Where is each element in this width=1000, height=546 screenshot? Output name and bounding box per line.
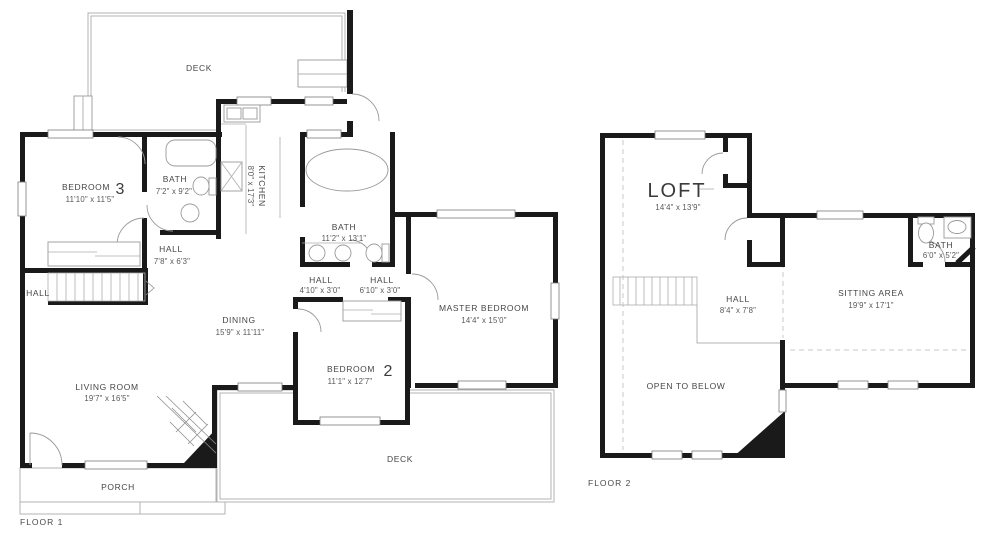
room-dims-hall1: 7'8" x 6'3": [154, 257, 190, 266]
sink-icon: [181, 204, 199, 222]
room-label-bedroom3: BEDROOM: [62, 182, 110, 192]
sink-icon: [335, 245, 351, 261]
floor1-plan: DECK BEDROOM 3 11'10" x 11'5" BATH 7'2" …: [18, 10, 559, 527]
floor1-title: FLOOR 1: [20, 517, 63, 527]
room-label-deck-top: DECK: [186, 63, 212, 73]
room-label-hall1: HALL: [159, 244, 183, 254]
living-corner-wall: [184, 428, 217, 463]
bath2-fixtures: [302, 149, 389, 262]
room-label-sitting: SITTING AREA: [838, 288, 904, 298]
room-label-bath2: BATH: [332, 222, 356, 232]
bathtub-icon: [166, 140, 216, 166]
room-label-kitchen: KITCHEN: [257, 165, 267, 207]
room-label-open-below: OPEN TO BELOW: [647, 381, 726, 391]
room-dims-bath2: 11'2" x 13'1": [322, 234, 367, 243]
room-dims-bath-f2: 6'0" x 5'2": [923, 251, 959, 260]
room-label-bath1: BATH: [163, 174, 187, 184]
bedroom3-closet: [48, 242, 140, 266]
master-bedroom-floor: [406, 212, 558, 388]
room-label-bedroom2: BEDROOM: [327, 364, 375, 374]
room-dims-bedroom2: 11'1" x 12'7": [328, 377, 373, 386]
room-dims-loft: 14'4" x 13'9": [655, 203, 700, 212]
floor1-stairs: [48, 273, 154, 301]
porch-step-strip: [20, 502, 225, 514]
room-dims-hall-f2: 8'4" x 7'8": [720, 306, 756, 315]
room-label-deck-bottom: DECK: [387, 454, 413, 464]
floor2-plan: LOFT 14'4" x 13'9" BATH 6'0" x 5'2" HALL…: [588, 131, 975, 488]
toilet-icon: [366, 244, 382, 262]
room-label-porch: PORCH: [101, 482, 135, 492]
room-label-dining: DINING: [222, 315, 255, 325]
bathtub-icon: [306, 149, 388, 191]
room-number-bedroom3: 3: [116, 181, 125, 198]
floorplan-page: DECK BEDROOM 3 11'10" x 11'5" BATH 7'2" …: [0, 0, 1000, 546]
room-dims-bath1: 7'2" x 9'2": [156, 187, 192, 196]
toilet-tank-icon: [382, 244, 389, 262]
room-dims-sitting: 19'9" x 17'1": [848, 301, 893, 310]
floorplan-canvas: DECK BEDROOM 3 11'10" x 11'5" BATH 7'2" …: [0, 0, 1000, 546]
room-dims-kitchen: 8'0" x 17'3": [246, 166, 255, 207]
room-label-living: LIVING ROOM: [75, 382, 138, 392]
toilet-icon: [193, 177, 209, 195]
sink-icon: [309, 245, 325, 261]
room-label-hall-f2: HALL: [726, 294, 750, 304]
fireplace-corner: [157, 396, 216, 453]
room-dims-bedroom3: 11'10" x 11'5": [66, 195, 115, 204]
sink-icon: [948, 221, 966, 234]
room-number-bedroom2: 2: [384, 363, 393, 380]
room-dims-dining: 15'9" x 11'11": [216, 328, 265, 337]
toilet-tank-icon: [209, 178, 216, 195]
bedroom2-closet: [343, 301, 401, 321]
open-below-corner-wall: [732, 411, 785, 458]
room-dims-hall3: 6'10" x 3'0": [360, 286, 401, 295]
room-dims-hall2: 4'10" x 3'0": [300, 286, 341, 295]
room-label-hall-left: HALL: [26, 288, 50, 298]
room-dims-living: 19'7" x 16'5": [84, 394, 129, 403]
room-label-master: MASTER BEDROOM: [439, 303, 529, 313]
room-label-hall3: HALL: [370, 275, 394, 285]
floor2-title: FLOOR 2: [588, 478, 631, 488]
room-label-loft: LOFT: [647, 180, 706, 202]
room-label-hall2: HALL: [309, 275, 333, 285]
room-dims-master: 14'4" x 15'0": [461, 316, 506, 325]
room-label-bath-f2: BATH: [929, 240, 953, 250]
